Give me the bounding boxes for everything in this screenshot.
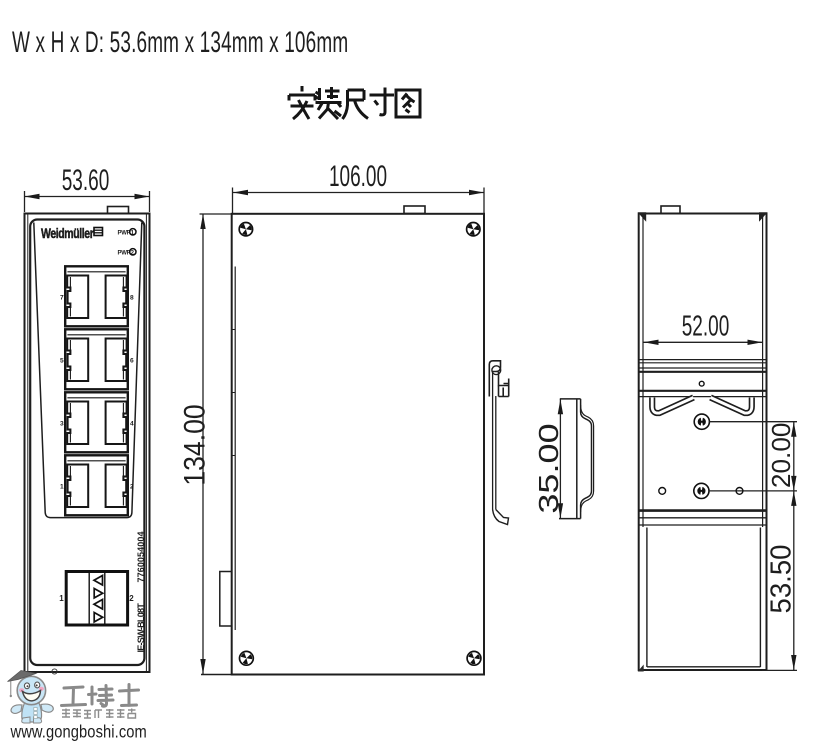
svg-text:2: 2 <box>129 594 134 603</box>
svg-text:53.60: 53.60 <box>62 164 110 197</box>
svg-text:4: 4 <box>130 420 134 427</box>
svg-text:6: 6 <box>130 357 134 364</box>
svg-text:1: 1 <box>60 483 64 490</box>
svg-text:7760054004: 7760054004 <box>136 531 146 582</box>
svg-text:20.00: 20.00 <box>766 422 796 488</box>
svg-text:8: 8 <box>130 294 134 301</box>
svg-text:W x H x D: 53.6mm x 134mm x 10: W x H x D: 53.6mm x 134mm x 106mm <box>12 26 348 59</box>
svg-text:106.00: 106.00 <box>329 160 387 193</box>
svg-text:52.00: 52.00 <box>682 311 730 343</box>
svg-text:7: 7 <box>60 294 64 301</box>
svg-text:3: 3 <box>60 420 64 427</box>
svg-text:1: 1 <box>59 594 64 603</box>
svg-text:134.00: 134.00 <box>178 404 211 485</box>
svg-text:5: 5 <box>60 357 64 364</box>
svg-text:IE-SW-BL08T: IE-SW-BL08T <box>136 603 146 653</box>
svg-text:www.gongboshi.com: www.gongboshi.com <box>10 722 147 741</box>
svg-text:2: 2 <box>130 483 134 490</box>
svg-text:35.00: 35.00 <box>533 423 564 513</box>
svg-text:53.50: 53.50 <box>765 545 797 614</box>
svg-text:Weidmüller: Weidmüller <box>41 225 94 241</box>
